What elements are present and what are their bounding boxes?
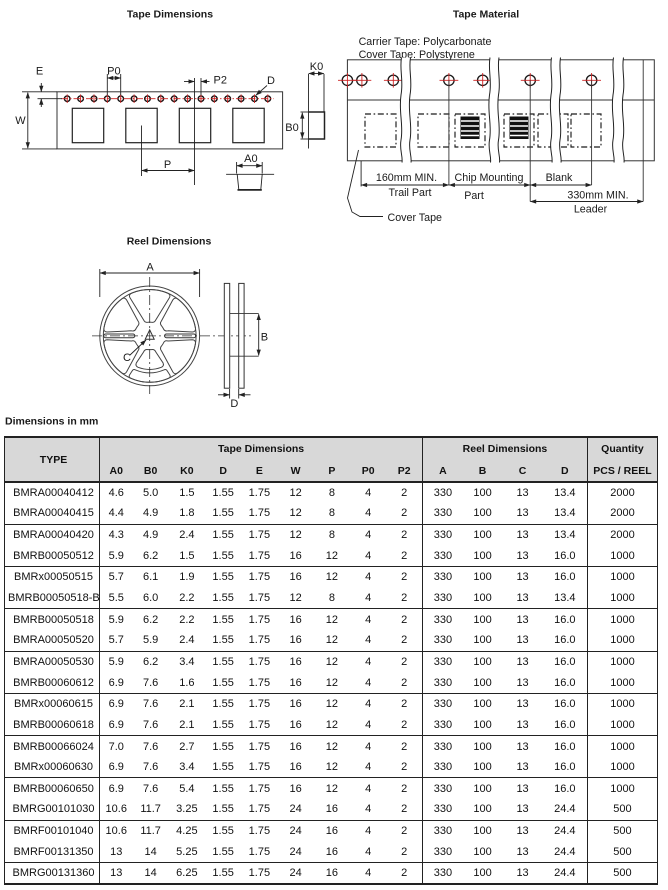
svg-text:P0: P0 — [107, 66, 120, 78]
svg-text:E: E — [36, 66, 43, 78]
svg-text:D: D — [267, 75, 275, 87]
svg-text:P2: P2 — [214, 75, 227, 87]
svg-text:C: C — [123, 352, 131, 364]
svg-text:B0: B0 — [285, 122, 298, 134]
svg-text:A0: A0 — [244, 153, 257, 165]
svg-text:Blank: Blank — [546, 172, 573, 184]
svg-text:Cover Tape: Cover Tape — [388, 212, 443, 224]
svg-text:D: D — [230, 398, 238, 410]
svg-text:Reel Dimensions: Reel Dimensions — [127, 236, 212, 248]
svg-text:A: A — [146, 262, 154, 274]
svg-text:Carrier Tape: Polycarbonate: Carrier Tape: Polycarbonate — [359, 36, 492, 48]
svg-text:W: W — [15, 115, 26, 127]
svg-text:Tape Dimensions: Tape Dimensions — [127, 9, 213, 21]
svg-text:Cover Tape: Polystyrene: Cover Tape: Polystyrene — [359, 49, 475, 61]
svg-text:330mm MIN.: 330mm MIN. — [567, 190, 628, 202]
svg-text:Leader: Leader — [574, 204, 608, 216]
svg-text:K0: K0 — [310, 61, 323, 73]
svg-text:Dimensions in mm: Dimensions in mm — [5, 416, 98, 428]
svg-text:P: P — [164, 159, 171, 171]
svg-text:B: B — [261, 332, 268, 344]
svg-text:Tape Material: Tape Material — [453, 9, 519, 21]
svg-text:Trail Part: Trail Part — [389, 187, 432, 199]
svg-text:Part: Part — [464, 190, 484, 202]
svg-text:Chip Mounting: Chip Mounting — [455, 172, 524, 184]
svg-text:160mm MIN.: 160mm MIN. — [376, 172, 437, 184]
